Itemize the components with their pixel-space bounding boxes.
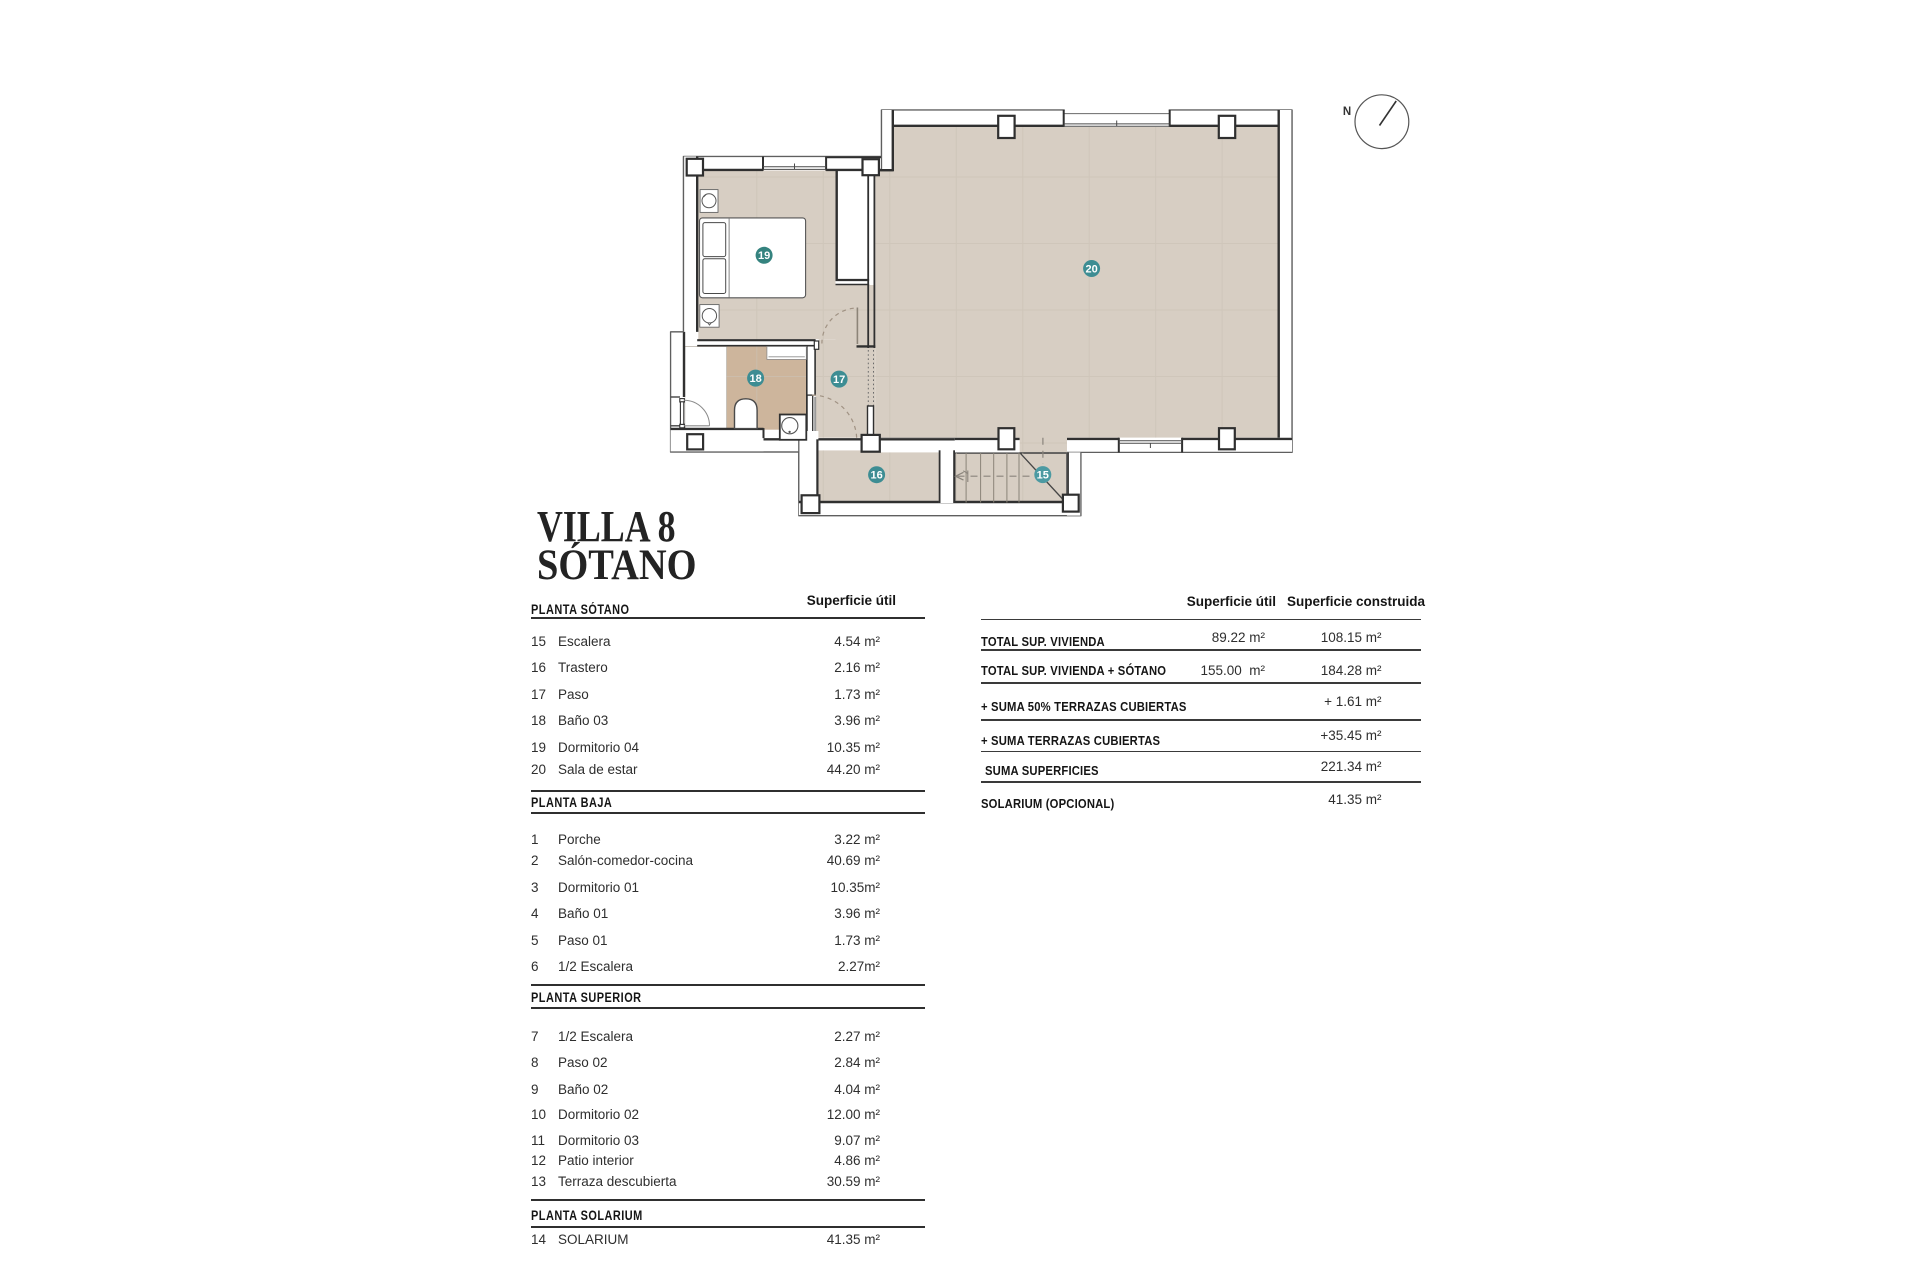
svg-text:18: 18: [749, 373, 761, 385]
svg-text:17: 17: [833, 374, 845, 386]
svg-text:N: N: [1343, 106, 1351, 118]
svg-text:20: 20: [1085, 263, 1097, 275]
svg-text:19: 19: [758, 250, 770, 262]
svg-text:15: 15: [1037, 470, 1049, 482]
svg-text:16: 16: [870, 470, 882, 482]
